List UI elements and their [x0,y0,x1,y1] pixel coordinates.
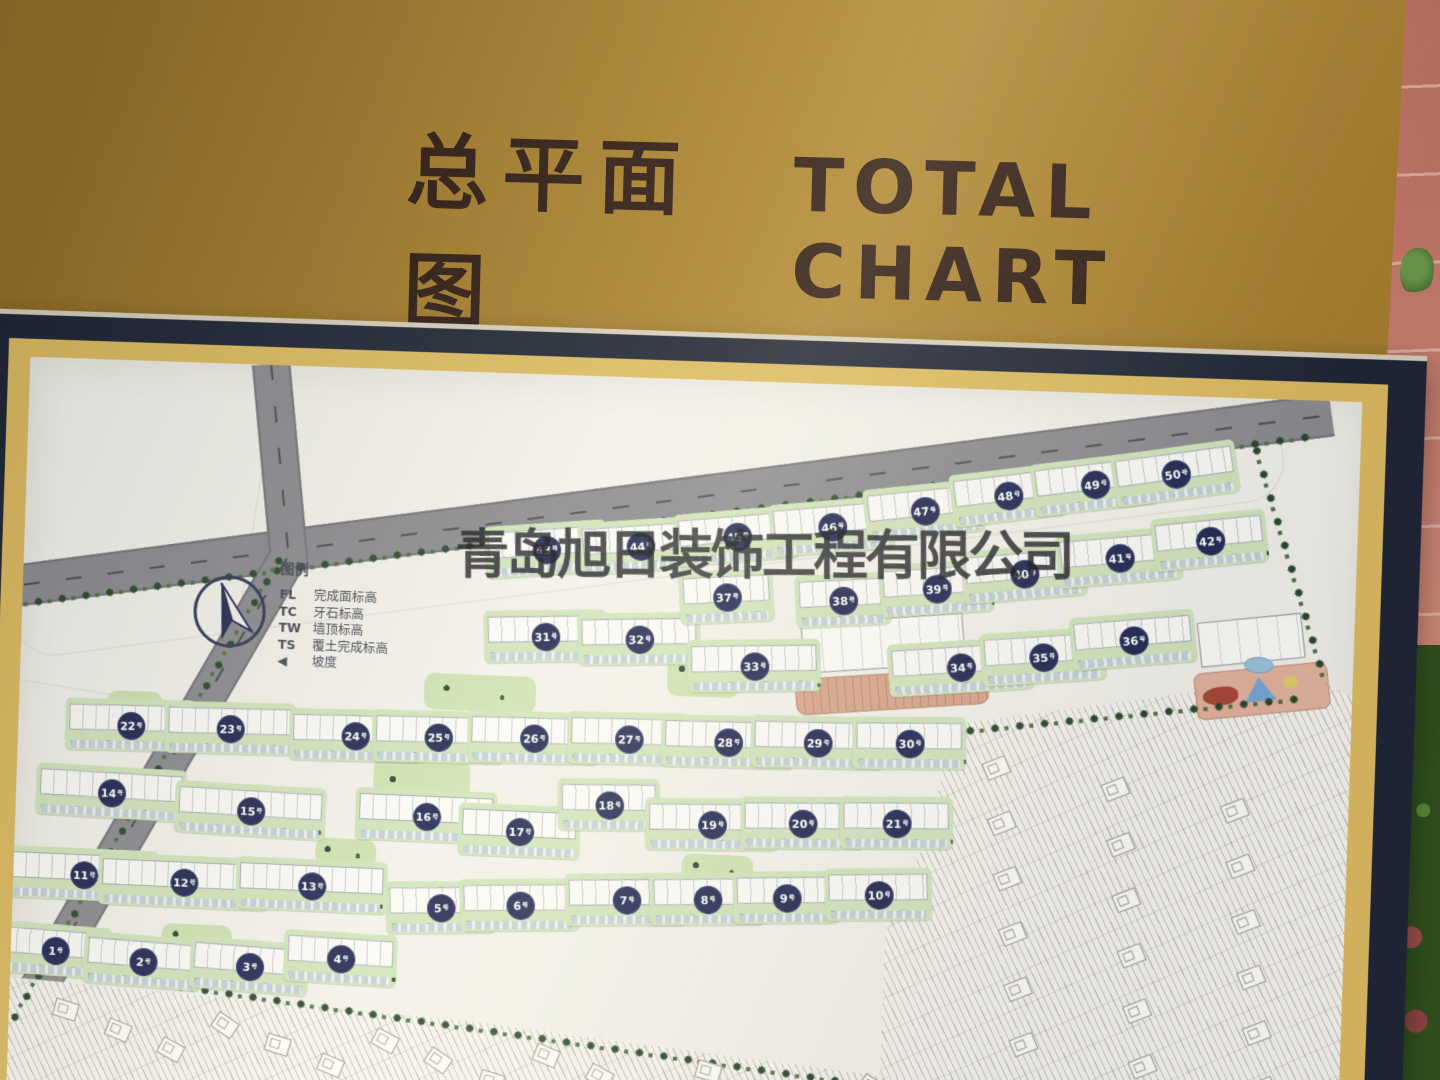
parking-strip [170,743,289,754]
building-number: 48 [997,490,1014,503]
building-number-badge: 21号 [883,810,912,839]
building-number: 36 [1122,635,1139,647]
legend-label: 墙顶标高 [312,621,363,640]
building-number: 21 [886,818,902,829]
parking-strip [846,839,947,848]
building-number-suffix: 号 [551,634,557,640]
building-number-suffix: 号 [1125,554,1132,561]
legend-key: TC [279,603,314,621]
building-number-badge: 25号 [424,723,453,752]
building-row: 42号 [1149,508,1269,572]
building-number-badge: 15号 [236,797,266,827]
building-number-badge: 38号 [829,586,859,616]
building-number-suffix: 号 [540,736,546,742]
building-number: 11 [73,869,89,881]
building-number-badge: 31号 [531,623,560,652]
building-number: 6 [513,900,521,911]
parking-strip [802,614,885,626]
building-number: 35 [1032,652,1049,664]
building-number-badge: 26号 [520,724,549,753]
building-number-suffix: 号 [967,664,974,670]
parking-strip [739,913,834,922]
building-number-suffix: 号 [849,597,856,603]
building-row: 36号 [1068,608,1198,671]
building-number: 27 [618,734,634,746]
legend-label: 牙石标高 [313,604,364,623]
building-number: 13 [301,880,317,892]
building-number-suffix: 号 [635,737,641,743]
building-number-badge: 6号 [506,892,535,920]
building-number: 31 [535,631,551,642]
building-number: 49 [1083,479,1100,492]
building-number-suffix: 号 [902,821,908,827]
play-sandpit [1283,675,1299,689]
building-number: 26 [523,733,539,744]
building-number-suffix: 号 [1014,492,1021,499]
title-english: TOTAL CHART [790,143,1367,330]
building-number-suffix: 号 [236,726,242,732]
building-number: 32 [628,634,644,645]
building-number: 3 [242,961,250,973]
building-row: 23号 [164,700,296,755]
building-number-badge: 20号 [789,810,818,839]
photo-of-site-plan-board: 总平面图 TOTAL CHART [0,0,1440,1080]
building-number: 23 [219,723,235,734]
building-number: 2 [136,956,144,968]
building-number: 12 [173,877,189,889]
slope-arrow-icon: ◀ [277,653,312,671]
building-number-badge: 5号 [427,894,456,922]
building-number-suffix: 号 [824,740,830,746]
building-number-suffix: 号 [760,663,766,669]
building-number: 7 [619,895,627,906]
building-number-badge: 17号 [505,817,534,846]
building-number: 29 [807,737,823,749]
building-number-suffix: 号 [89,873,95,879]
building-number-badge: 12号 [170,868,199,897]
building-number-suffix: 号 [709,897,715,903]
legend-label: 坡度 [311,654,337,672]
building-number: 33 [743,661,759,672]
building-number: 41 [1108,552,1125,565]
building-number-suffix: 号 [522,903,528,909]
building-number-badge: 19号 [698,811,727,840]
compass-icon [189,571,270,652]
building-number-suffix: 号 [525,829,531,835]
building-number-suffix: 号 [256,809,262,815]
building-number: 28 [717,737,733,749]
building-number-suffix: 号 [361,733,367,739]
building-number-suffix: 号 [432,814,438,820]
building-number-suffix: 号 [628,897,634,903]
building-number-badge: 9号 [773,884,802,913]
building-row: 33号 [687,638,822,692]
building-number-suffix: 号 [189,880,195,886]
building-number-suffix: 号 [251,964,257,970]
building-row: 2号 [82,930,204,992]
building-number: 9 [780,893,788,904]
building-number-badge: 14号 [97,779,126,809]
building-row: 10号 [824,868,932,922]
company-watermark: 青岛旭日装饰工程有限公司 [455,512,1030,591]
building-number-suffix: 号 [615,803,621,809]
building-row: 14号 [35,762,188,823]
building-number: 42 [1198,535,1215,548]
building-number: 5 [434,903,442,914]
building-number-badge: 33号 [740,652,769,681]
building-number: 30 [899,738,915,749]
legend: 图例 FL 完成面标高 TC 牙石标高 TW 墙顶标高 TS [277,558,391,673]
road-center-dash [270,364,290,564]
building-number-badge: 7号 [613,886,642,915]
building-number-badge: 11号 [70,861,99,890]
building-number-suffix: 号 [718,822,724,828]
building-row: 6号 [459,878,580,931]
building-number: 34 [950,662,967,674]
building-number-suffix: 号 [1216,537,1223,544]
building-number: 14 [101,787,117,799]
building-number-badge: 27号 [615,725,644,754]
site-map: 图例 FL 完成面标高 TC 牙石标高 TW 墙顶标高 TS [6,357,1362,1080]
building-row: 13号 [235,856,388,915]
building-number-suffix: 号 [342,956,348,962]
north-compass [189,571,270,656]
building-number-badge: 22号 [117,712,146,741]
building-row: 21号 [839,796,953,850]
building-number: 38 [832,595,848,607]
parking-strip [831,910,926,919]
building-number-suffix: 号 [1101,480,1108,487]
parking-strip [564,820,654,829]
legend-key: TW [278,620,313,638]
building-number-suffix: 号 [734,740,740,746]
building-number-suffix: 号 [317,884,323,890]
parking-strip [686,611,768,623]
building-number-badge: 16号 [412,802,441,831]
building-number: 10 [868,890,884,901]
poster-margin-tan: 图例 FL 完成面标高 TC 牙石标高 TW 墙顶标高 TS [0,338,1388,1080]
building-number: 16 [415,811,431,823]
building-number: 8 [700,894,708,905]
legend-title: 图例 [280,558,391,582]
building-number: 1 [48,945,56,957]
building-number-suffix: 号 [645,637,651,643]
building-number-suffix: 号 [884,892,890,898]
building-number: 15 [240,805,256,817]
building-number-badge: 13号 [298,872,327,901]
building-number: 24 [344,731,360,742]
building-number-badge: 4号 [326,944,356,974]
parking-strip [694,681,815,691]
parking-strip [466,921,574,930]
building-number-suffix: 号 [117,791,123,797]
poster-frame-navy: 图例 FL 完成面标高 TC 牙石标高 TW 墙顶标高 TS [0,308,1427,1080]
park-patch [424,673,537,714]
building-number: 4 [333,953,341,965]
title-chinese: 总平面图 [402,105,729,351]
building-number: 22 [120,720,136,731]
building-number: 20 [792,818,808,829]
building-number: 18 [598,800,614,811]
building-number-suffix: 号 [1181,470,1188,477]
building-row: 4号 [282,929,398,988]
parking-strip [463,845,573,858]
building-number-suffix: 号 [145,959,151,965]
building-number: 25 [427,732,443,743]
building-number-suffix: 号 [789,895,795,901]
building-number: 19 [701,819,717,830]
building-number-suffix: 号 [444,735,450,741]
building-number-suffix: 号 [808,821,814,827]
building-row: 30号 [852,716,966,770]
legend-key: TS [278,636,313,654]
building-number-badge: 30号 [896,730,925,759]
building-number: 50 [1164,468,1181,481]
building-number-badge: 23号 [216,715,245,744]
building-number-suffix: 号 [915,741,921,747]
building-number-badge: 32号 [625,625,654,654]
building-number-badge: 8号 [693,886,722,915]
legend-key: FL [279,586,314,604]
building-number-suffix: 号 [443,905,449,911]
building-number-badge: 24号 [341,722,370,751]
building-number: 37 [716,592,732,604]
building-number-badge: 18号 [595,791,624,820]
parking-strip [859,759,960,768]
parking-strip [584,654,695,663]
building-number-badge: 10号 [865,881,894,910]
building-number-suffix: 号 [136,723,142,729]
building-number-suffix: 号 [733,594,740,600]
building-number-badge: 28号 [714,728,743,757]
building-number-suffix: 号 [1139,637,1146,644]
building-number-suffix: 号 [57,948,63,954]
building-number: 17 [509,826,525,838]
building-row: 15号 [174,780,328,841]
building-number-badge: 29号 [804,729,833,758]
building-number-suffix: 号 [1049,654,1056,661]
